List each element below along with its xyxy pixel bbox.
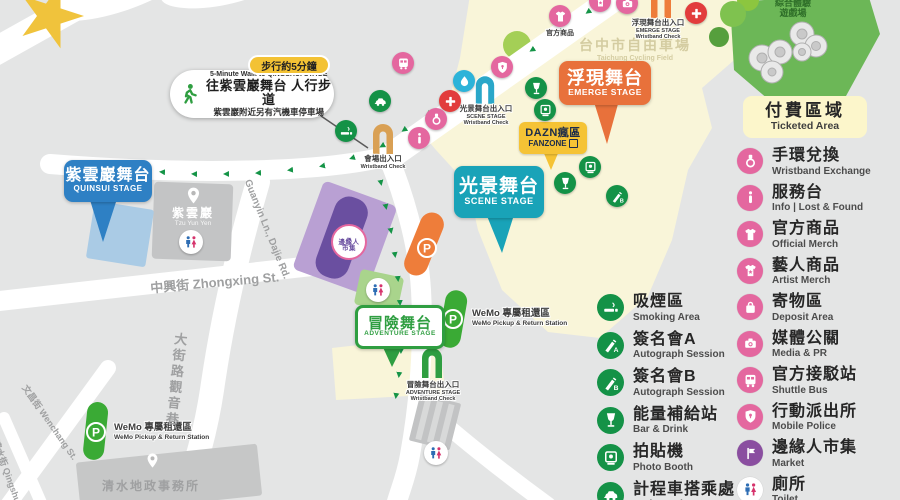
legend-item-sublabel: Wristband Exchange (772, 167, 871, 178)
legend-item-label: 能量補給站 (633, 407, 718, 424)
legend-item: 簽名會B Autograph Session (597, 369, 735, 396)
quinsui-stage-title: 紫雲巖舞台 (64, 168, 152, 185)
svg-text:P: P (423, 242, 431, 256)
walk-callout-note: 紫雲巖附近另有汽機車停車場 (204, 108, 334, 118)
legend-item: 官方商品 Official Merch (737, 221, 871, 247)
dazn-logo-icon (569, 139, 578, 148)
camera-icon (737, 331, 763, 357)
legend-item-label: 計程車搭乘處 (633, 482, 735, 499)
legend-item-label: 簽名會B (633, 369, 725, 386)
flag-icon (737, 440, 763, 466)
shirt-icon (737, 221, 763, 247)
toilet-icon (737, 477, 763, 500)
toilet-icon (179, 230, 203, 254)
legend-item: 行動派出所 Mobile Police (737, 404, 871, 430)
walk-callout-title: 往紫雲巖舞台 人行步道 (204, 79, 334, 108)
merch-stand-label: 官方商品 (546, 28, 574, 38)
legend-item: 吸煙區 Smoking Area (597, 294, 735, 321)
smoking-area-icon (335, 120, 357, 142)
legend-green-column: 吸煙區 Smoking Area 簽名會A Autograph Session … (597, 294, 735, 500)
venue-entrance-label: 會場出入口 Wristband Check (361, 155, 406, 170)
pen-b-icon (597, 369, 624, 396)
photo-booth-icon (534, 99, 556, 121)
temple-label: 紫雲巖 Tzu Yun Yen (158, 206, 228, 228)
legend-item-sublabel: Bar & Drink (633, 425, 718, 436)
legend-item-label: 拍貼機 (633, 444, 693, 461)
legend-item-label: 官方接駁站 (772, 367, 857, 384)
bag-icon (737, 294, 763, 320)
ticketed-area-title: 付費區域 (743, 102, 867, 121)
legend-item-sublabel: Autograph Session (633, 350, 725, 361)
legend-item-sublabel: Toilet (772, 495, 806, 500)
goblet-icon (597, 407, 624, 434)
legend-item-sublabel: Artist Merch (772, 276, 840, 287)
emerge-stage-subtitle: EMERGE STAGE (559, 88, 651, 97)
legend-item-label: 廁所 (772, 477, 806, 494)
legend-item-sublabel: Photo Booth (633, 463, 693, 474)
svg-text:P: P (92, 426, 100, 440)
fanzone-title: DAZN瘋區 (525, 128, 581, 140)
market-badge: 邊緣人 市集 (331, 224, 367, 260)
shirt-star-icon (737, 258, 763, 284)
toilet-icon (366, 278, 390, 302)
info-icon (408, 127, 430, 149)
wemo-label-right: WeMo 專屬租還區 WeMo Pickup & Return Station (472, 308, 567, 328)
adventure-entrance-label: 冒險舞台出入口 ADVENTURE STAGE Wristband Check (406, 381, 460, 402)
legend-item: 手環兌換 Wristband Exchange (737, 148, 871, 174)
legend-item-sublabel: Market (772, 459, 857, 470)
fanzone-callout: DAZN瘋區 FANZONE (519, 122, 587, 154)
scene-stage-title: 光景舞台 (454, 177, 544, 197)
legend-item-label: 簽名會A (633, 332, 725, 349)
legend-item-sublabel: Deposit Area (772, 313, 833, 324)
smoking-icon (597, 294, 624, 321)
stage-callout-quinsui: 紫雲巖舞台 QUINSUI STAGE (64, 160, 152, 202)
bar-drink-icon (554, 172, 576, 194)
emerge-stage-title: 浮現舞台 (559, 69, 651, 88)
adventure-stage-subtitle: ADVENTURE STAGE (358, 331, 442, 338)
info-icon (737, 185, 763, 211)
svg-text:P: P (449, 313, 457, 327)
bus-icon (737, 367, 763, 393)
legend-item-label: 寄物區 (772, 294, 833, 311)
legend-item-sublabel: Smoking Area (633, 313, 700, 324)
bar-drink-icon (525, 77, 547, 99)
legend-item-sublabel: Autograph Session (633, 388, 725, 399)
land-office-label: 清水地政事務所 (102, 477, 200, 494)
legend-pink-column: 手環兌換 Wristband Exchange 服務台 Info | Lost … (737, 148, 871, 500)
legend-item: 服務台 Info | Lost & Found (737, 185, 871, 211)
festival-map: A B (0, 0, 900, 500)
scene-stage-subtitle: SCENE STAGE (454, 197, 544, 206)
legend-item-label: 官方商品 (772, 221, 840, 238)
legend-item-sublabel: Info | Lost & Found (772, 203, 863, 214)
first-aid-icon (439, 90, 461, 112)
legend-item: 邊緣人市集 Market (737, 440, 871, 466)
legend-item: 拍貼機 Photo Booth (597, 444, 735, 471)
walking-person-icon (178, 82, 201, 106)
ticketed-area-header: 付費區域 Ticketed Area (743, 96, 867, 138)
legend-item-sublabel: Shuttle Bus (772, 386, 857, 397)
scene-entrance-label: 光景舞台出入口 SCENE STAGE Wristband Check (460, 105, 513, 126)
legend-item-label: 服務台 (772, 185, 863, 202)
toilet-icon (424, 441, 448, 465)
water-drop-icon (453, 70, 475, 92)
ticketed-area-subtitle: Ticketed Area (743, 121, 867, 133)
legend-item-sublabel: Official Merch (772, 240, 840, 251)
legend-item: 藝人商品 Artist Merch (737, 258, 871, 284)
official-merch-icon (549, 5, 571, 27)
walk-callout: 5-Minute Walk to QINGSHUI STAGE 往紫雲巖舞台 人… (170, 70, 334, 118)
autograph-b-icon (606, 185, 628, 207)
legend-item: 寄物區 Deposit Area (737, 294, 871, 320)
walk-time-badge: 步行約5分鐘 (248, 55, 330, 75)
legend-item-sublabel: Media & PR (772, 349, 840, 360)
shuttle-bus-icon (392, 52, 414, 74)
wristband-exchange-icon (425, 108, 447, 130)
emerge-entrance-label: 浮現舞台出入口 EMERGE STAGE Wristband Check (632, 19, 685, 40)
legend-item: 簽名會A Autograph Session (597, 332, 735, 359)
first-aid-icon (685, 2, 707, 24)
taxi-stand-icon (369, 90, 391, 112)
shield-icon (737, 404, 763, 430)
legend-item-label: 行動派出所 (772, 404, 857, 421)
legend-item: 計程車搭乘處 Taxi Stand (597, 482, 735, 500)
legend-item-label: 媒體公關 (772, 331, 840, 348)
legend-item-label: 吸煙區 (633, 294, 700, 311)
mobile-police-icon (491, 56, 513, 78)
wristband-icon (737, 148, 763, 174)
legend-item: 廁所 Toilet (737, 477, 871, 500)
taxi-icon (597, 482, 624, 500)
playground-label: 綜合體驗 遊戲場 (758, 0, 828, 19)
legend-item-label: 藝人商品 (772, 258, 840, 275)
photo-booth-icon (579, 156, 601, 178)
legend-item: 官方接駁站 Shuttle Bus (737, 367, 871, 393)
stage-callout-scene: 光景舞台 SCENE STAGE (454, 166, 544, 218)
stage-callout-emerge: 浮現舞台 EMERGE STAGE (559, 61, 651, 105)
stage-callout-adventure: 冒險舞台 ADVENTURE STAGE (355, 305, 445, 349)
adventure-stage-title: 冒險舞台 (358, 316, 442, 332)
legend-item-sublabel: Mobile Police (772, 422, 857, 433)
fanzone-subtitle: FANZONE (528, 140, 566, 148)
legend-item: 能量補給站 Bar & Drink (597, 407, 735, 434)
legend-item: 媒體公關 Media & PR (737, 331, 871, 357)
quinsui-stage-subtitle: QUINSUI STAGE (64, 185, 152, 193)
photobooth-icon (597, 444, 624, 471)
legend-item-label: 手環兌換 (772, 148, 871, 165)
legend-item-label: 邊緣人市集 (772, 440, 857, 457)
pen-a-icon (597, 332, 624, 359)
